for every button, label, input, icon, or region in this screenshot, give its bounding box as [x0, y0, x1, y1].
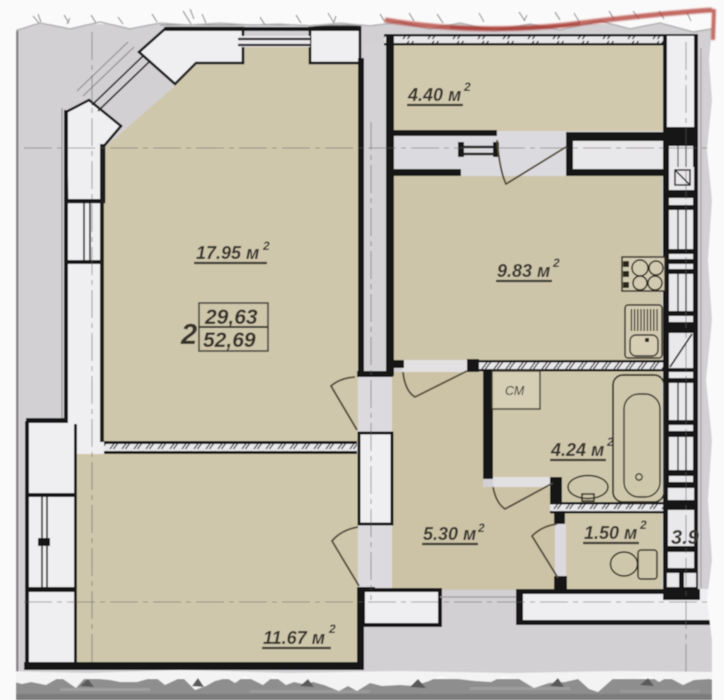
svg-text:2: 2 — [328, 622, 336, 636]
svg-text:2: 2 — [463, 80, 471, 94]
svg-text:11.67 м: 11.67 м — [263, 628, 325, 648]
svg-text:СМ: СМ — [505, 384, 525, 398]
svg-text:2: 2 — [180, 319, 197, 351]
svg-text:1.50 м: 1.50 м — [584, 523, 637, 543]
svg-text:4.24 м: 4.24 м — [550, 440, 604, 460]
svg-text:5.30 м: 5.30 м — [423, 524, 476, 544]
svg-text:2: 2 — [262, 239, 270, 253]
svg-text:4.40 м: 4.40 м — [407, 85, 461, 105]
svg-text:2: 2 — [639, 518, 647, 532]
svg-text:2: 2 — [606, 435, 614, 449]
svg-text:9.83 м: 9.83 м — [497, 261, 550, 281]
svg-text:52,69: 52,69 — [203, 329, 256, 352]
svg-text:2: 2 — [552, 256, 560, 270]
svg-text:2: 2 — [477, 521, 485, 535]
svg-text:29,63: 29,63 — [204, 306, 258, 329]
svg-text:3.9: 3.9 — [671, 527, 700, 549]
svg-text:17.95 м: 17.95 м — [196, 243, 259, 263]
